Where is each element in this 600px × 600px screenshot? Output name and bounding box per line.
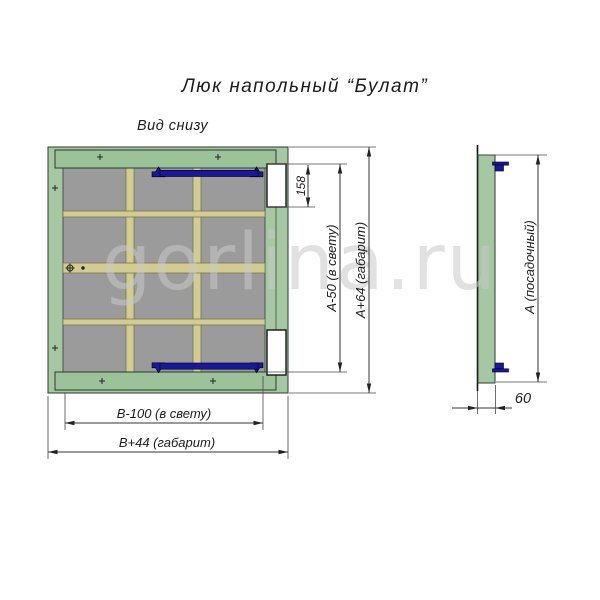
dim-clear-width-label: В-100 (в свету) bbox=[117, 406, 212, 421]
arrow-right-icon bbox=[279, 450, 289, 454]
rivet-dot bbox=[81, 266, 84, 269]
arrow-right-icon bbox=[254, 421, 264, 425]
dim-clear-width: В-100 (в свету) bbox=[65, 406, 263, 425]
dim-depth-label: 60 bbox=[515, 391, 531, 407]
horizontal-rib bbox=[63, 319, 265, 325]
arrow-down-icon bbox=[306, 198, 310, 208]
arrow-left-icon bbox=[496, 406, 506, 410]
watermark-text: gorlina.ru bbox=[102, 218, 498, 308]
dim-depth-60: 60 bbox=[452, 391, 531, 410]
dim-158: 158 bbox=[294, 165, 310, 207]
hinge-bar bbox=[160, 170, 258, 176]
dim-clear-height-label: А-50 (в свету) bbox=[324, 224, 339, 312]
arrow-down-icon bbox=[367, 384, 371, 394]
drawing-sheet: gorlina.ru 158 А-50 (в свету) bbox=[0, 0, 600, 600]
side-hinge-top bbox=[493, 162, 509, 171]
arrow-left-icon bbox=[65, 421, 75, 425]
arrow-up-icon bbox=[306, 165, 310, 175]
dim-158-label: 158 bbox=[294, 176, 308, 196]
bottom-crossbar bbox=[55, 372, 276, 390]
hinge-cutout-bottom bbox=[267, 330, 286, 375]
dim-overall-width: В+44 (габарит) bbox=[48, 435, 288, 454]
bottom-view-label: Вид снизу bbox=[137, 118, 208, 134]
hinge-body bbox=[495, 165, 504, 171]
drawing-title: Люк напольный “Булат” bbox=[180, 76, 429, 97]
hinge-bar bbox=[160, 363, 258, 369]
arrow-down-icon bbox=[338, 363, 342, 373]
hinge-cutout-top bbox=[267, 164, 286, 207]
arrow-up-icon bbox=[367, 147, 371, 157]
dim-overall-width-label: В+44 (габарит) bbox=[119, 435, 215, 450]
arrow-up-icon bbox=[338, 164, 342, 174]
arrow-up-icon bbox=[536, 155, 540, 165]
hinge-cap bbox=[493, 369, 509, 372]
arrow-left-icon bbox=[48, 450, 58, 454]
arrow-down-icon bbox=[536, 373, 540, 383]
horizontal-rib bbox=[63, 211, 265, 217]
hinge-body bbox=[495, 363, 504, 369]
arrow-right-icon bbox=[468, 406, 478, 410]
dim-seat-height: А (посадочный) bbox=[522, 155, 540, 382]
side-hinge-bottom bbox=[493, 363, 509, 372]
dim-overall-height-label: А+64 (габарит) bbox=[353, 222, 368, 319]
dim-seat-height-label: А (посадочный) bbox=[522, 220, 537, 315]
top-crossbar bbox=[55, 150, 276, 168]
